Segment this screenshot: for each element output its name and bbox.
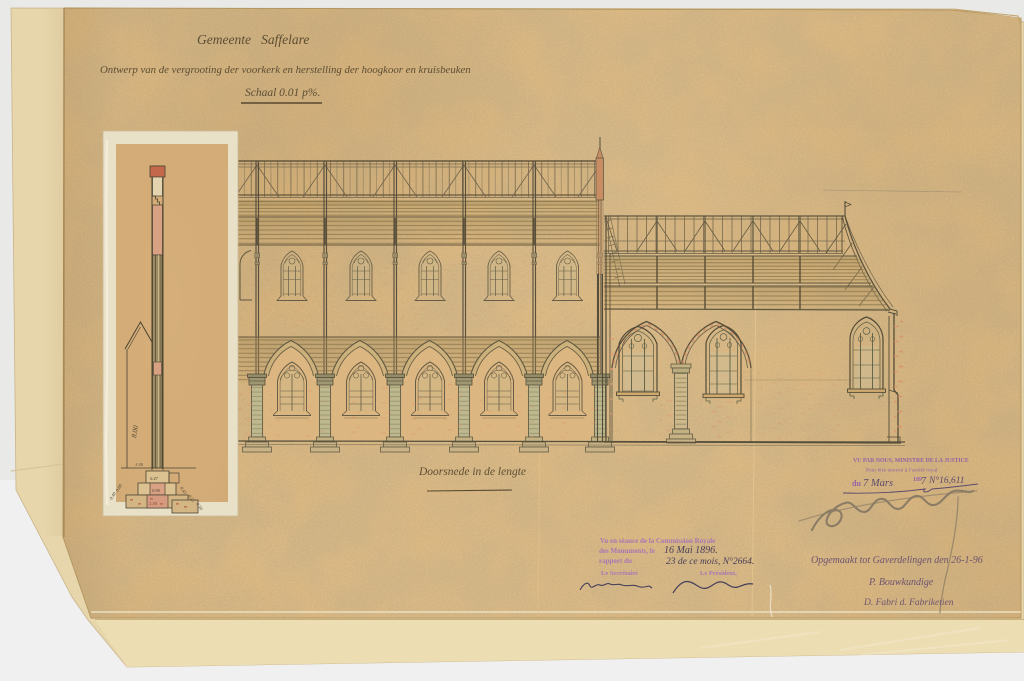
svg-text:Schaal 0.01 p%.: Schaal 0.01 p%. <box>245 87 320 99</box>
svg-text:0.47: 0.47 <box>150 476 159 481</box>
svg-text:N°16,611: N°16,611 <box>928 475 965 486</box>
svg-text:Opgemaakt tot Gaverdelingen de: Opgemaakt tot Gaverdelingen den 26-1-96 <box>811 555 983 566</box>
svg-text:Gemeente Saffelare: Gemeente Saffelare <box>197 32 309 47</box>
svg-text:rapport du: rapport du <box>599 557 632 565</box>
svg-text:VU PAR NOUS, MINISTRE DE LA JU: VU PAR NOUS, MINISTRE DE LA JUSTICE <box>853 458 969 464</box>
svg-text:1.30: 1.30 <box>135 462 144 467</box>
svg-text:Vu en séance de la Commission: Vu en séance de la Commission Royale <box>600 537 715 545</box>
svg-text:Doorsnede in de lengte: Doorsnede in de lengte <box>418 466 526 478</box>
svg-text:Ontwerp van de vergrooting der: Ontwerp van de vergrooting der voorkerk … <box>100 64 471 76</box>
svg-text:des Monuments, le: des Monuments, le <box>599 547 655 555</box>
svg-text:Le Président,: Le Président, <box>700 570 737 577</box>
svg-text:16 Mai 1896.: 16 Mai 1896. <box>664 545 718 556</box>
svg-text:Pour être annexé à l’arrêté ro: Pour être annexé à l’arrêté royal <box>866 468 938 474</box>
svg-text:P. Bouwkundige: P. Bouwkundige <box>868 577 934 588</box>
svg-text:Le Secrétaire: Le Secrétaire <box>601 570 638 577</box>
svg-text:0.90: 0.90 <box>152 488 161 493</box>
svg-text:23 de ce mois, N°2664.: 23 de ce mois, N°2664. <box>666 556 754 567</box>
svg-text:D. Fabri d. Fabriketien: D. Fabri d. Fabriketien <box>863 598 954 608</box>
svg-text:1.30: 1.30 <box>149 501 158 506</box>
svg-text:du: du <box>852 479 861 488</box>
svg-text:7 Mars: 7 Mars <box>863 478 893 489</box>
